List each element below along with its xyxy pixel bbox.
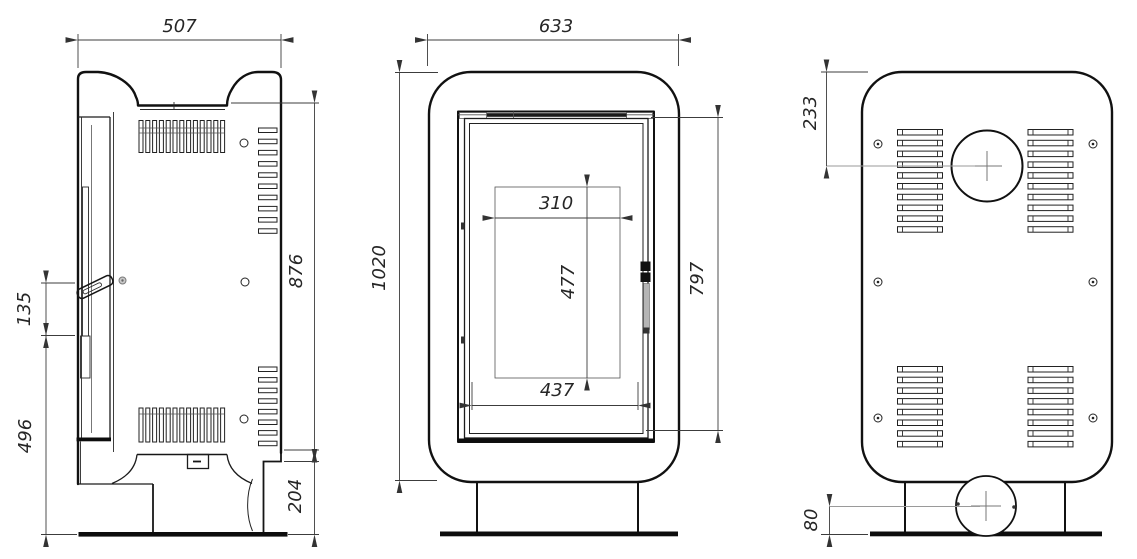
back-louvers-bottom-right — [1028, 367, 1073, 447]
side-door — [77, 112, 114, 484]
dim-label-496: 496 — [15, 419, 36, 453]
front-view: 633 1020 797 310 477 437 — [369, 16, 723, 536]
dim-front-total-height: 1020 — [369, 73, 438, 481]
dim-side-plinth-height: 204 — [284, 462, 319, 535]
back-louvers-top-left — [898, 130, 943, 233]
back-view: 233 80 — [800, 72, 1112, 536]
dim-side-front-height: 496 — [15, 336, 77, 535]
front-base-plate — [440, 532, 678, 537]
side-panel-holes — [240, 139, 249, 423]
side-plinth — [78, 453, 288, 537]
door-bottom-sill — [458, 439, 654, 443]
door-sill — [77, 438, 112, 442]
dim-label-310: 310 — [539, 193, 573, 214]
door-hinge-upper — [461, 223, 465, 230]
dim-flue-offset: 233 — [800, 72, 975, 166]
dim-label-507: 507 — [162, 16, 197, 37]
door-latch — [641, 262, 651, 334]
dim-label-477: 477 — [558, 264, 579, 299]
side-view: 507 876 204 135 496 — [14, 16, 319, 537]
door-inset-panel-upper — [83, 187, 89, 336]
side-base-plate — [79, 532, 288, 537]
dim-label-135: 135 — [14, 292, 35, 326]
dim-label-437: 437 — [540, 380, 575, 401]
dim-front-width: 633 — [428, 16, 679, 66]
dim-label-797: 797 — [687, 261, 708, 296]
dim-label-1020: 1020 — [369, 245, 390, 291]
door-hinge-lower — [461, 337, 465, 344]
dim-side-width: 507 — [78, 16, 281, 68]
dim-label-633: 633 — [539, 16, 573, 37]
side-bottom-vent-grille — [139, 408, 225, 442]
dim-label-80: 80 — [801, 509, 822, 532]
intake-profile-arc — [248, 479, 253, 531]
dim-door-height: 797 — [646, 118, 723, 431]
stove-dimension-drawing: 507 876 204 135 496 — [0, 0, 1137, 559]
dim-label-876: 876 — [286, 254, 307, 288]
technical-drawing-page: 507 876 204 135 496 — [0, 0, 1137, 559]
back-panel-screws — [874, 140, 1097, 422]
dim-door-width: 437 — [472, 380, 638, 410]
back-louvers-bottom-left — [898, 367, 943, 447]
back-louvers-top-right — [1028, 130, 1073, 233]
dim-glass-width: 310 — [495, 193, 620, 218]
dim-side-handle-zone: 135 — [14, 283, 75, 336]
dim-label-204: 204 — [285, 479, 306, 513]
dim-label-233: 233 — [800, 96, 821, 130]
side-rear-louvers-top — [259, 128, 278, 233]
handle-pivot — [119, 277, 126, 284]
dim-intake-height: 80 — [801, 507, 980, 535]
air-intake — [956, 476, 1016, 536]
side-rear-louvers-bottom — [259, 367, 278, 446]
side-top-vent-grille — [139, 121, 225, 153]
dim-glass-height: 477 — [558, 187, 587, 378]
front-plinth — [440, 482, 678, 536]
